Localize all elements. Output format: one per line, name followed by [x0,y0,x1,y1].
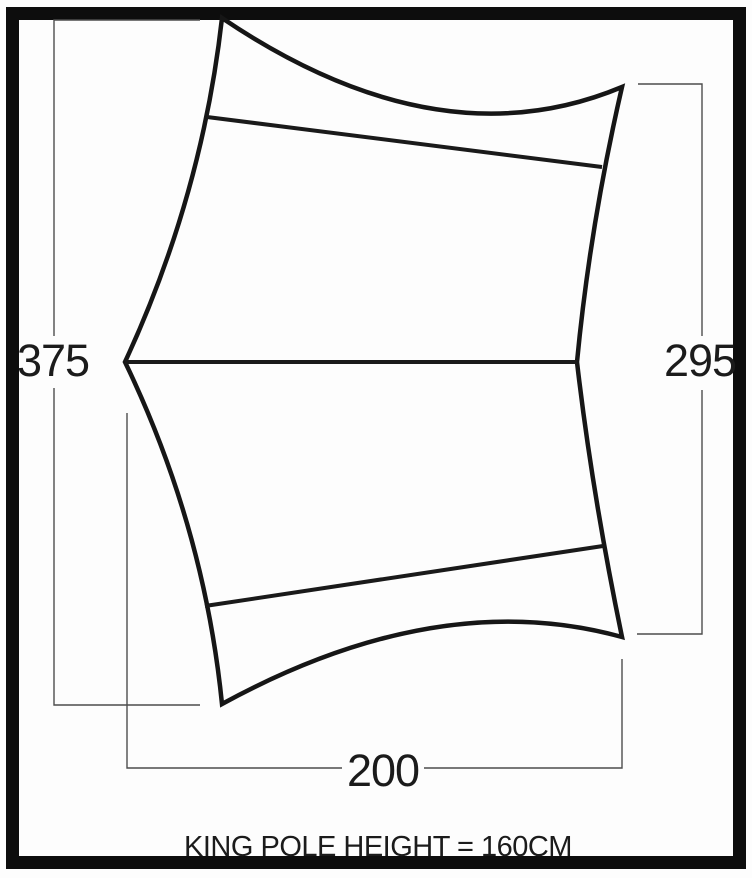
king-pole-caption: KING POLE HEIGHT = 160CM [184,831,572,863]
diagram-stage: 375 295 200 KING POLE HEIGHT = 160CM [0,0,752,878]
right-dimension-label: 295 [664,335,736,386]
tarp-dimension-diagram: 375 295 200 KING POLE HEIGHT = 160CM [0,0,752,878]
bottom-dimension-label: 200 [347,745,419,796]
left-dimension-label: 375 [17,335,89,386]
